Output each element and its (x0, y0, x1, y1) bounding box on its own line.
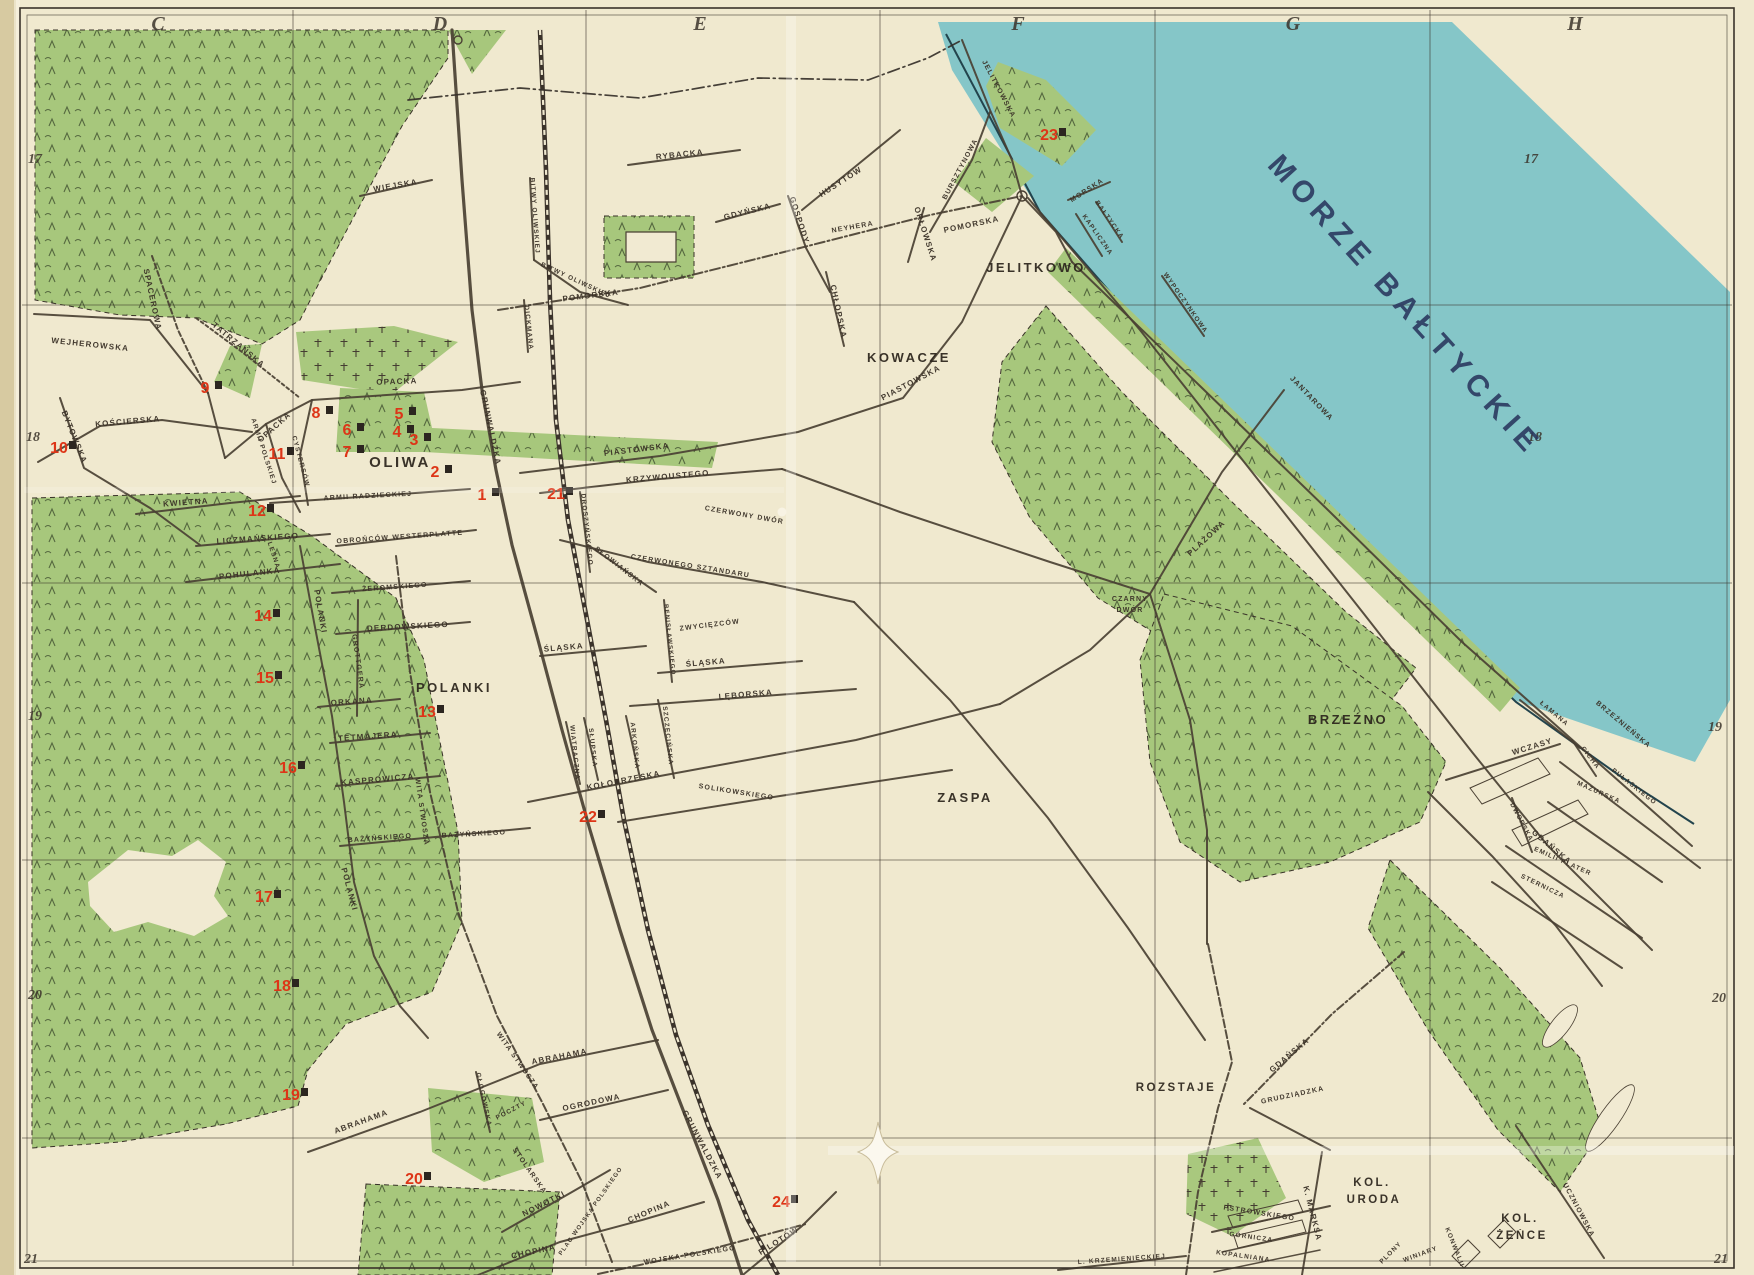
poi-building-square (273, 609, 280, 617)
poi-marker-number: 6 (343, 422, 352, 439)
grid-number: 17 (1524, 152, 1539, 167)
grid-letter: C (151, 13, 165, 35)
poi-marker-number: 17 (255, 889, 273, 906)
poi-building-square (437, 705, 444, 713)
poi-marker-number: 10 (50, 440, 68, 457)
district-label: KOL. (1501, 1213, 1538, 1225)
grid-letter: H (1566, 13, 1584, 35)
poi-building-square (357, 423, 364, 431)
poi-building-square (326, 406, 333, 414)
poi-marker-number: 11 (269, 446, 286, 463)
district-label: URODA (1347, 1194, 1402, 1206)
grid-number: 20 (27, 988, 42, 1003)
poi-marker-number: 5 (395, 406, 404, 423)
poi-building-square (298, 761, 305, 769)
poi-building-square (424, 1172, 431, 1180)
poi-building-square (409, 407, 416, 415)
grid-number: 19 (28, 709, 42, 724)
page-edge-highlight (14, 0, 20, 1275)
poi-building-square (287, 447, 294, 455)
poi-marker-number: 14 (254, 608, 272, 625)
poi-marker-number: 3 (410, 432, 419, 449)
grid-letter: G (1286, 13, 1301, 35)
poi-building-square (424, 433, 431, 441)
poi-building-square (274, 890, 281, 898)
poi-marker-number: 16 (279, 760, 297, 777)
fold-crease-vertical (786, 16, 796, 1262)
district-label: ZASPA (937, 790, 993, 805)
district-label: ROZSTAJE (1136, 1082, 1217, 1094)
district-label: POLANKI (416, 680, 492, 695)
poi-marker-number: 15 (256, 670, 274, 687)
grid-number: 21 (1713, 1252, 1728, 1267)
grid-number: 20 (1711, 991, 1726, 1006)
street-label: DWÓR (1117, 605, 1144, 614)
poi-marker-number: 20 (405, 1171, 423, 1188)
fold-crease-horizontal-left (24, 487, 784, 493)
clearing (626, 232, 676, 262)
grid-letter: E (692, 13, 706, 35)
poi-marker-number: 22 (579, 809, 597, 826)
fold-crease-horizontal (828, 1146, 1734, 1155)
map-page: CDEFGH17181920211718192021 WEJHEROWSKASP… (0, 0, 1754, 1275)
paper-wear-spot (778, 508, 787, 517)
poi-marker-number: 12 (248, 503, 266, 520)
poi-building-square (445, 465, 452, 473)
grid-number: 17 (28, 152, 43, 167)
district-label: ŻEŃCE (1496, 1229, 1547, 1242)
page-left-edge (0, 0, 16, 1275)
grid-number: 18 (26, 430, 40, 445)
poi-building-square (275, 671, 282, 679)
poi-marker-number: 18 (273, 978, 291, 995)
district-label: KOL. (1353, 1177, 1390, 1189)
poi-building-square (357, 445, 364, 453)
poi-marker-number: 19 (282, 1087, 300, 1104)
grid-letter: F (1010, 13, 1025, 35)
poi-building-square (267, 504, 274, 512)
street-label: OPACKA (376, 376, 418, 386)
district-label: JELITKOWO (986, 260, 1086, 275)
district-label: OLIWA (369, 454, 431, 471)
poi-building-square (215, 381, 222, 389)
grid-number: 19 (1708, 720, 1722, 735)
poi-marker-number: 9 (201, 380, 210, 397)
city-map-canvas: CDEFGH17181920211718192021 WEJHEROWSKASP… (0, 0, 1754, 1275)
district-label: BRZEŹNO (1308, 712, 1388, 727)
poi-marker-number: 2 (431, 464, 440, 481)
poi-building-square (1059, 128, 1066, 136)
poi-building-square (598, 810, 605, 818)
poi-marker-number: 13 (418, 704, 436, 721)
poi-marker-number: 7 (343, 444, 352, 461)
poi-building-square (292, 979, 299, 987)
poi-marker-number: 23 (1040, 127, 1058, 144)
poi-marker-number: 8 (312, 405, 321, 422)
grid-letter: D (432, 13, 447, 35)
poi-building-square (301, 1088, 308, 1096)
street-label: CZARNY (1112, 596, 1148, 603)
poi-building-square (69, 441, 76, 449)
grid-number: 21 (23, 1252, 38, 1267)
district-label: KOWACZE (867, 350, 951, 365)
poi-marker-number: 4 (393, 424, 402, 441)
poi-building-square (407, 425, 414, 433)
